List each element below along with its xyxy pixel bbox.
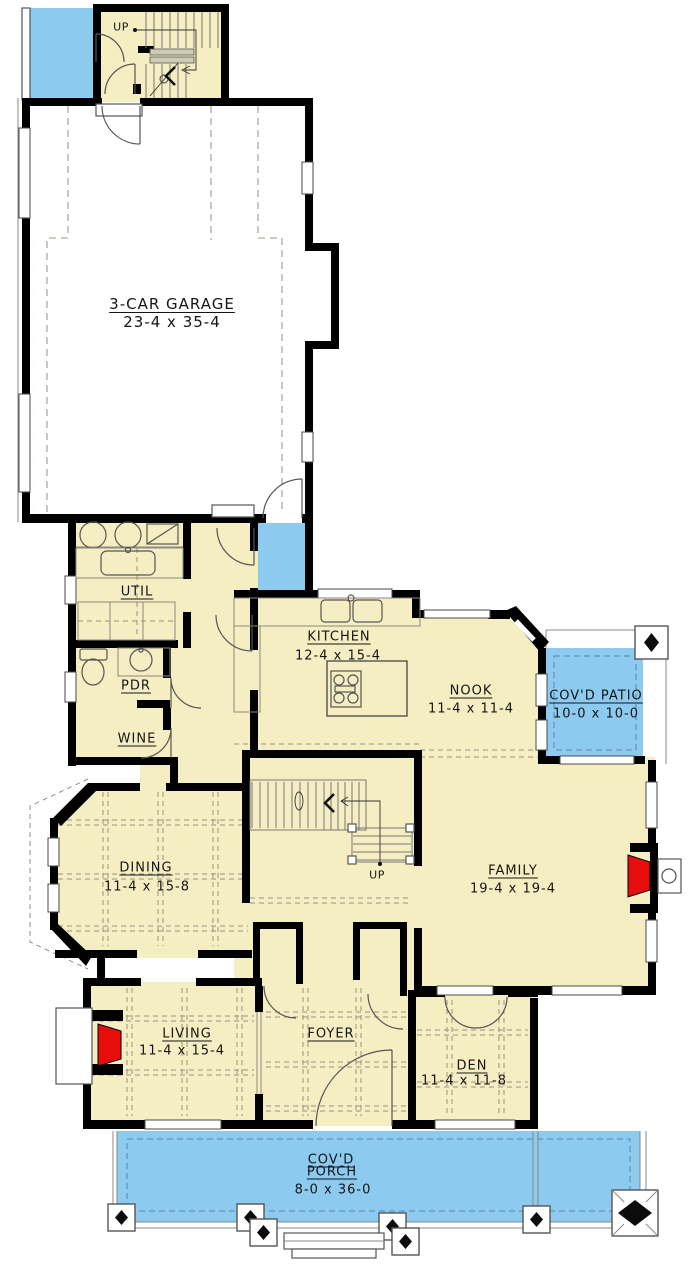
nook-label: NOOK <box>450 684 493 699</box>
porch-label-line2: PORCH <box>307 1165 357 1180</box>
side-entry-floor <box>258 523 306 591</box>
garage-dims: 23-4 x 35-4 <box>123 313 221 331</box>
patio-label: COV'D PATIO <box>549 689 643 704</box>
porch-post <box>108 1204 135 1231</box>
den-label: DEN <box>457 1059 488 1074</box>
patio-dims: 10-0 x 10-0 <box>553 707 639 722</box>
garage-label: 3-CAR GARAGE <box>109 295 235 313</box>
living-label: LIVING <box>162 1027 212 1042</box>
upper-up-label: UP <box>113 21 129 34</box>
pdr-label: PDR <box>121 679 151 694</box>
upper-entry-porch <box>30 8 94 100</box>
dining-label: DINING <box>119 861 172 876</box>
porch-dims: 8-0 x 36-0 <box>295 1183 372 1198</box>
family-label: FAMILY <box>488 864 538 879</box>
front-steps <box>284 1233 384 1258</box>
kitchen-island <box>327 661 407 716</box>
kitchen-dims: 12-4 x 15-4 <box>295 649 381 664</box>
main-up-label: UP <box>369 869 385 882</box>
exterior-notch <box>100 958 138 980</box>
living-dims: 11-4 x 15-4 <box>139 1044 225 1059</box>
floor-plan: 3-CAR GARAGE 23-4 x 35-4 UTIL PDR WINE K… <box>0 0 700 1274</box>
foyer-label: FOYER <box>307 1027 354 1042</box>
upper-deck-strip <box>22 8 30 100</box>
wine-label: WINE <box>118 732 157 747</box>
util-label: UTIL <box>121 585 154 600</box>
kitchen-label: KITCHEN <box>307 630 370 645</box>
porch-post <box>250 1219 277 1246</box>
patio-floor <box>546 648 643 760</box>
stair-hall-floor <box>234 750 420 1000</box>
family-dims: 19-4 x 19-4 <box>470 882 556 897</box>
patio-post <box>635 626 668 659</box>
porch-post <box>392 1228 419 1255</box>
den-dims: 11-4 x 11-8 <box>421 1074 507 1089</box>
porch-corner-post <box>612 1190 658 1236</box>
nook-dims: 11-4 x 11-4 <box>428 702 514 717</box>
porch-floor <box>117 1131 640 1222</box>
porch-post <box>523 1206 550 1233</box>
dining-dims: 11-4 x 15-8 <box>104 880 190 895</box>
